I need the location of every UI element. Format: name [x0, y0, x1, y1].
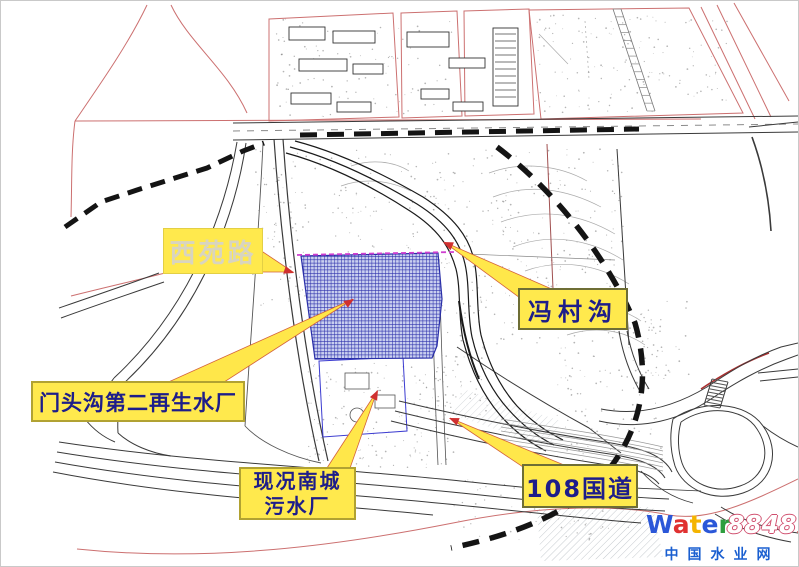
label-xiyuan-road: 西苑路 — [163, 228, 263, 274]
cad-site-plan-drawing — [1, 1, 799, 567]
watermark-brand: Water8848.com — [646, 512, 798, 543]
plant-site-hatch — [297, 252, 455, 359]
label-fengcun-gou: 冯村沟 — [518, 288, 628, 330]
ladder-building-rungs — [495, 9, 655, 111]
label-nancheng-plant: 现况南城 污水厂 — [239, 467, 356, 520]
site-plan-page: 西苑路 门头沟第二再生水厂 冯村沟 现况南城 污水厂 108国道 Water88… — [0, 0, 799, 567]
label-108-highway-text: 108国道 — [526, 469, 634, 504]
watermark: Water8848.com 中国水业网 — [646, 512, 798, 564]
label-fengcun-gou-text: 冯村沟 — [528, 292, 618, 327]
label-xiyuan-road-text: 西苑路 — [169, 233, 256, 270]
watermark-brand-letters: Water — [646, 510, 731, 539]
building-footprints — [289, 27, 518, 112]
watermark-brand-suffix: 8848 — [727, 510, 797, 539]
label-108-highway: 108国道 — [522, 464, 638, 508]
watermark-site-name: 中国水业网 — [646, 544, 798, 564]
label-mentougou-plant-text: 门头沟第二再生水厂 — [39, 387, 237, 417]
label-nancheng-line2: 污水厂 — [265, 494, 331, 519]
label-mentougou-plant: 门头沟第二再生水厂 — [31, 381, 245, 422]
label-nancheng-line1: 现况南城 — [254, 469, 342, 494]
